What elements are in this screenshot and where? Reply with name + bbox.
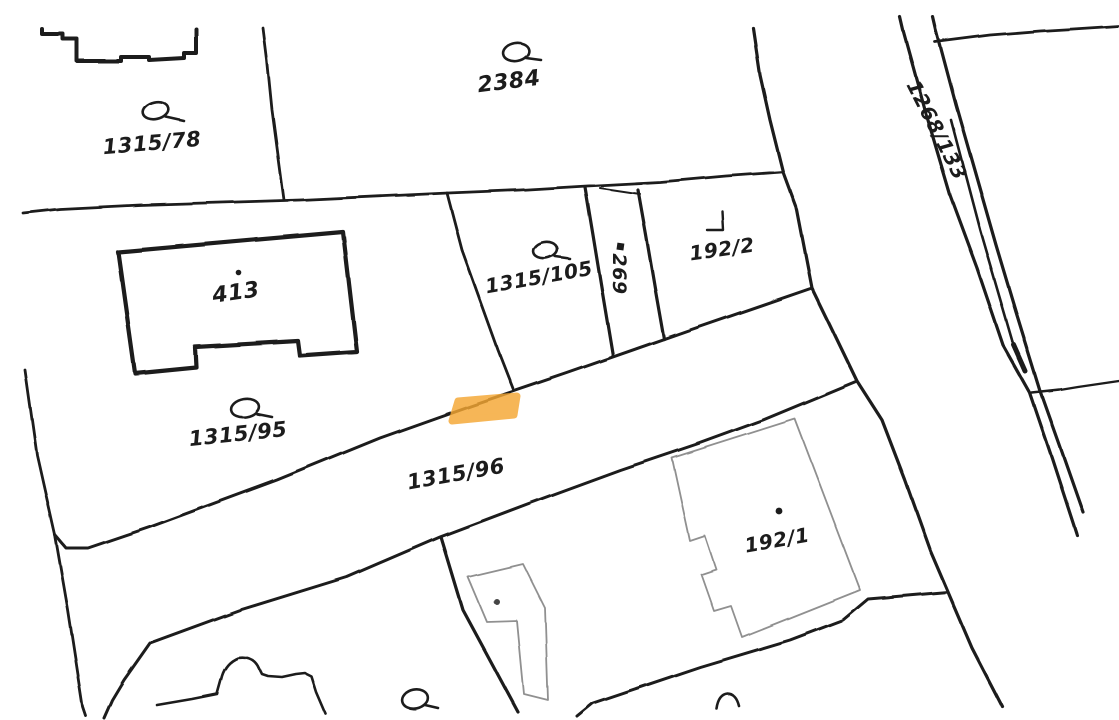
corner-mark-icon — [707, 211, 723, 230]
house-number-marker-icon — [616, 243, 624, 251]
strip-1268-133-right — [933, 17, 1083, 512]
boundary-top-right — [935, 26, 1119, 42]
building-flag-outline — [468, 564, 548, 700]
partial-symbol-arc-icon — [717, 694, 739, 709]
map-canvas — [0, 0, 1119, 720]
building-192-1-outline — [672, 419, 860, 637]
boundary-left-vertical — [25, 370, 86, 716]
boundary-192-block-west — [441, 537, 518, 712]
building-point-icon — [235, 269, 241, 275]
grassland-symbol-icon — [400, 687, 438, 711]
grassland-symbol-icon — [532, 240, 569, 260]
parcel-label-269: 269 — [608, 253, 630, 294]
building-point-icon — [494, 599, 500, 605]
grassland-symbol-icon — [502, 41, 541, 63]
grassland-symbol-icon — [142, 100, 184, 122]
highlight-marker — [452, 396, 517, 421]
building-point-icon — [776, 508, 783, 515]
grassland-symbol-icon — [230, 397, 272, 420]
curvy-structure-outline — [157, 658, 325, 713]
boundary-branch-right-edge — [1032, 381, 1119, 393]
road-1315-96-upper-edge — [55, 288, 812, 548]
strip-269-right — [638, 190, 664, 339]
boundary-top — [23, 172, 782, 213]
boundary-topleft-vertical — [263, 28, 284, 200]
strip-269-top-jog — [600, 188, 640, 194]
building-outline-top-left — [42, 29, 196, 61]
cadastral-map: 1315/7823844131315/105269192/21315/95131… — [0, 0, 1119, 720]
boundary-192-1-south — [577, 592, 948, 716]
